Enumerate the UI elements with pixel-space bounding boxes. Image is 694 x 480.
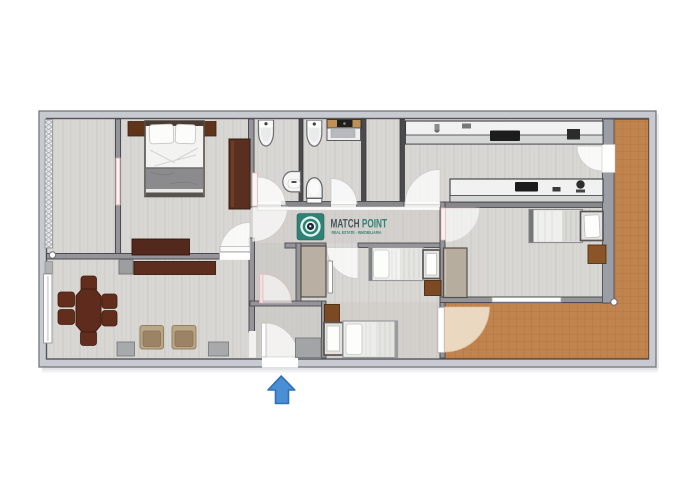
svg-text:MATCH POINT: MATCH POINT [331,217,388,231]
svg-text:REAL ESTATE - INMOBILIARIA: REAL ESTATE - INMOBILIARIA [332,230,383,235]
